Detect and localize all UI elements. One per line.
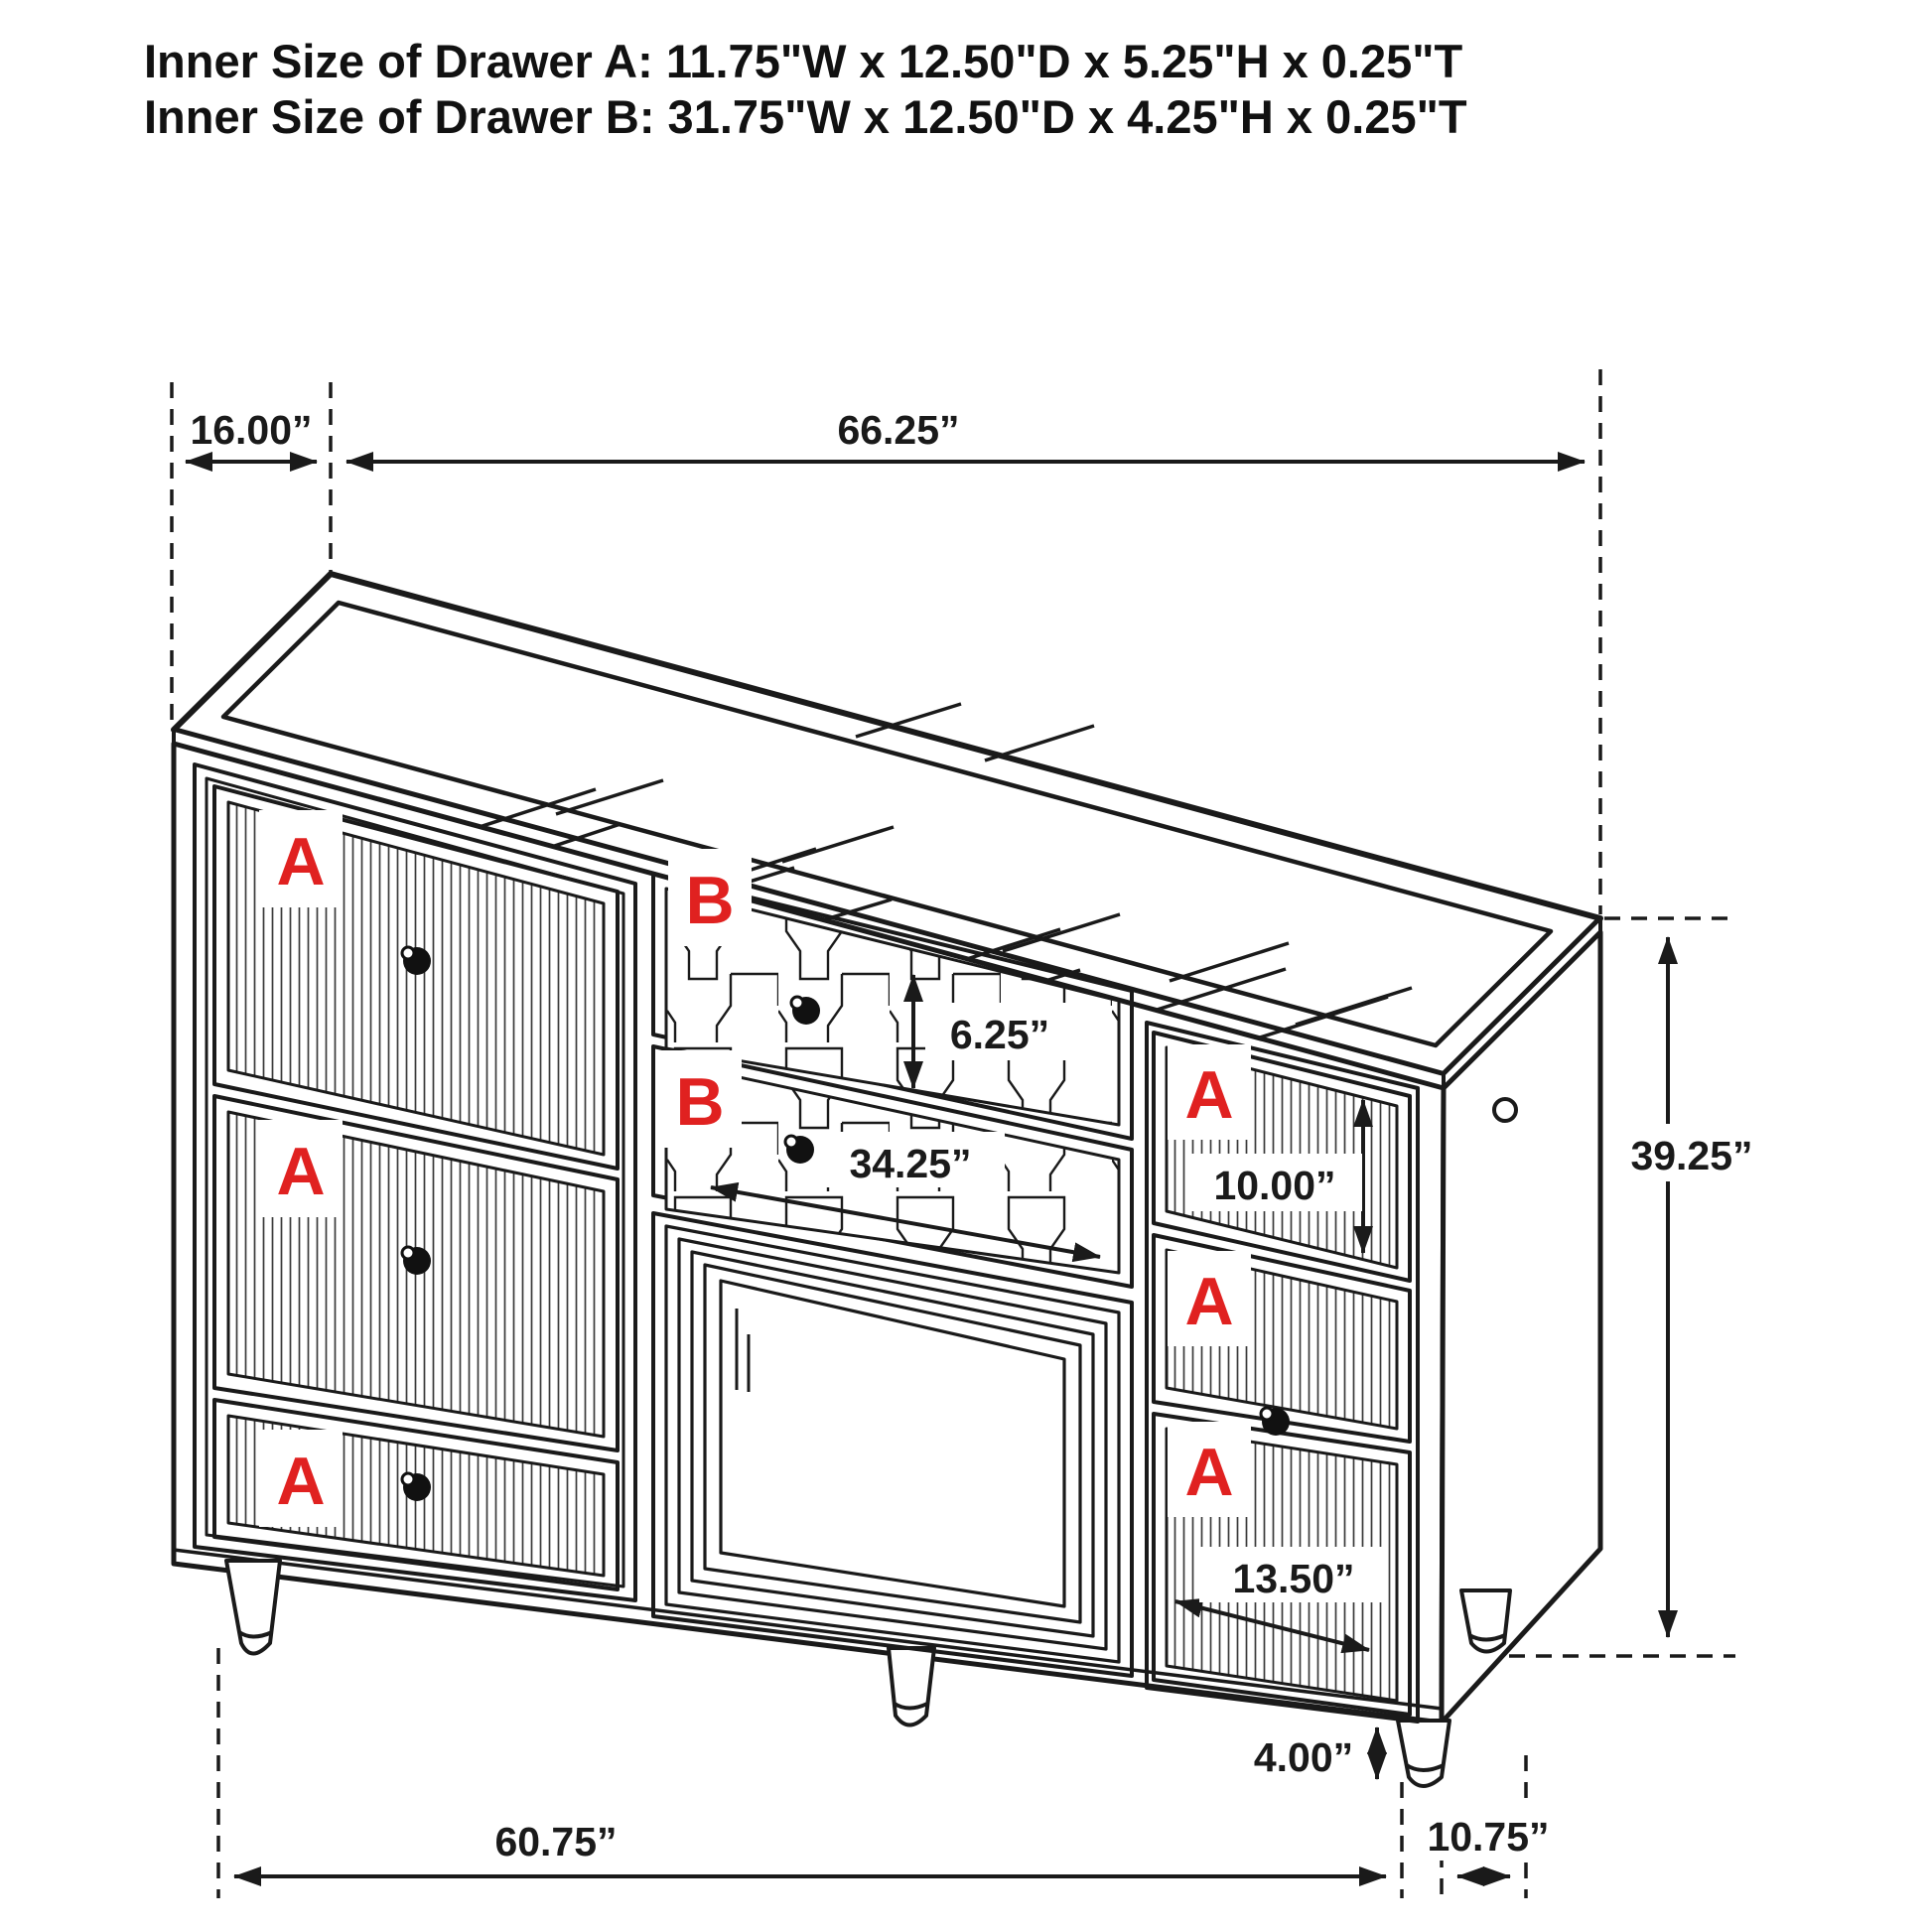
dim-base-depth: 10.75” [1408,1807,1569,1876]
title-block: Inner Size of Drawer A: 11.75"W x 12.50"… [144,35,1467,143]
label-drawer-a1-right: A [1184,1057,1233,1133]
dim-top-depth: 16.00” [186,407,317,462]
dim-top-width: 66.25” [346,407,1585,462]
leg-front-middle [889,1648,934,1725]
title-line-2: Inner Size of Drawer B: 31.75"W x 12.50"… [144,90,1467,143]
label-drawer-b2: B [675,1064,724,1140]
dim-overall-height-label: 39.25” [1630,1133,1752,1178]
label-drawer-a3-left: A [276,1444,325,1519]
dim-top-width-label: 66.25” [837,407,959,453]
dim-right-top-drawer-height-label: 10.00” [1213,1163,1335,1208]
title-line-1: Inner Size of Drawer A: 11.75"W x 12.50"… [144,35,1463,87]
dim-leg-height: 4.00” [1254,1727,1377,1780]
dim-base-width-label: 60.75” [494,1819,617,1864]
label-drawer-a1-left: A [276,824,325,899]
dim-drawer-b-height-label: 6.25” [950,1012,1049,1057]
side-panel-hole [1494,1099,1516,1121]
label-drawer-a3-right: A [1184,1435,1233,1510]
label-drawer-a2-left: A [276,1134,325,1209]
label-drawer-a2-right: A [1184,1264,1233,1339]
leg-front-left [226,1561,280,1654]
dimension-diagram-page: Inner Size of Drawer A: 11.75"W x 12.50"… [0,0,1932,1932]
dim-base-width: 60.75” [234,1819,1386,1876]
dim-right-bottom-drawer-width-label: 13.50” [1232,1556,1354,1601]
dim-top-depth-label: 16.00” [190,407,312,453]
label-drawer-b1: B [685,863,734,938]
dresser-dimension-diagram: Inner Size of Drawer A: 11.75"W x 12.50"… [0,0,1932,1932]
leg-front-right [1398,1721,1449,1786]
dim-base-depth-label: 10.75” [1427,1814,1549,1860]
dim-overall-height: 39.25” [1606,937,1777,1637]
dim-drawer-b-width-label: 34.25” [849,1141,971,1186]
dim-leg-height-label: 4.00” [1254,1734,1353,1780]
